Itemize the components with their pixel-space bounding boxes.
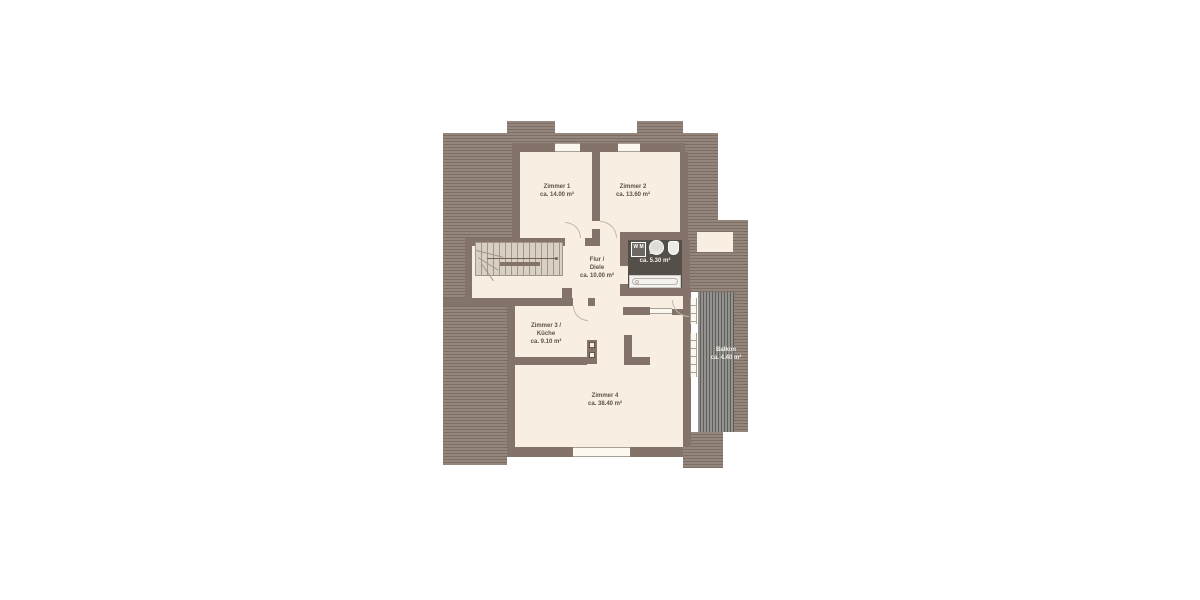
room-area: ca. 10.00 m² bbox=[557, 272, 637, 280]
floor-plan: W M Zimmer 1 ca. 14.00 m² Zimmer 2 ca. 1… bbox=[443, 120, 753, 482]
wall-bottom bbox=[630, 447, 683, 457]
room-name: Diele bbox=[557, 264, 637, 272]
room-label-zimmer-3-kueche: Zimmer 3 / Küche ca. 9.10 m² bbox=[506, 322, 586, 346]
roof-hatch-right-upper bbox=[685, 133, 718, 220]
room-area: ca. 4.40 m² bbox=[691, 354, 761, 362]
window bbox=[650, 308, 672, 314]
room-name: Zimmer 4 bbox=[565, 392, 645, 400]
roof-niche bbox=[697, 232, 733, 252]
room-area: ca. 38.40 m² bbox=[565, 400, 645, 408]
room-area: ca. 5.30 m² bbox=[625, 257, 685, 265]
wall bbox=[512, 143, 555, 152]
floor-rooms-bottom bbox=[507, 298, 691, 448]
door-post-square bbox=[589, 342, 595, 348]
window bbox=[618, 143, 640, 152]
wall bbox=[588, 298, 595, 306]
balcony-deck bbox=[698, 292, 734, 432]
room-name: Küche bbox=[506, 330, 586, 338]
wall-bath-bottom bbox=[620, 288, 690, 296]
window bbox=[555, 143, 580, 152]
wall-stub bbox=[562, 288, 572, 306]
room-label-balkon: Balkon ca. 4.40 m² bbox=[691, 346, 761, 362]
room-name: Bad bbox=[625, 249, 685, 257]
room-label-zimmer-2: Zimmer 2 ca. 13.60 m² bbox=[593, 183, 673, 199]
room-area: ca. 13.60 m² bbox=[593, 191, 673, 199]
roof-hatch-right-of-balcony bbox=[734, 292, 748, 432]
room-name: Balkon bbox=[691, 346, 761, 354]
door-post-square bbox=[589, 352, 595, 358]
wall-bottom bbox=[507, 447, 573, 457]
room-name: Zimmer 1 bbox=[517, 183, 597, 191]
room-label-zimmer-1: Zimmer 1 ca. 14.00 m² bbox=[517, 183, 597, 199]
wall bbox=[623, 307, 650, 315]
room-name: Zimmer 3 / bbox=[506, 322, 586, 330]
wall-hall-bottom bbox=[443, 298, 573, 306]
room-label-zimmer-4: Zimmer 4 ca. 38.40 m² bbox=[565, 392, 645, 408]
wall bbox=[580, 143, 618, 152]
roof-hatch-left-lower bbox=[443, 298, 507, 465]
roof-hatch-left-upper bbox=[443, 145, 516, 238]
page: { "plan": { "type": "floor-plan", "rooms… bbox=[0, 0, 1200, 600]
roof-hatch-bump-left bbox=[507, 121, 555, 133]
roof-hatch-left-stair bbox=[443, 238, 465, 298]
wall-stair-left bbox=[465, 246, 472, 298]
roof-hatch-bump-right bbox=[637, 121, 683, 133]
staircase bbox=[475, 242, 563, 276]
room-area: ca. 14.00 m² bbox=[517, 191, 597, 199]
wall-bath-top bbox=[620, 232, 688, 240]
room-name: Zimmer 2 bbox=[593, 183, 673, 191]
stair-handrail bbox=[487, 258, 557, 259]
wall bbox=[640, 143, 685, 152]
wall bbox=[585, 238, 600, 246]
bathtub-drain bbox=[635, 280, 639, 284]
room-label-bad: Bad ca. 5.30 m² bbox=[625, 249, 685, 265]
wall-l-horizontal bbox=[624, 357, 650, 365]
wall-zimmer1-left bbox=[512, 152, 520, 246]
balcony-door bbox=[690, 298, 697, 324]
roof-hatch-right-middle bbox=[682, 220, 748, 292]
window-bottom bbox=[573, 447, 630, 457]
room-area: ca. 9.10 m² bbox=[506, 338, 586, 346]
wall-kitchen-bottom bbox=[507, 357, 587, 365]
stair-center-rail bbox=[500, 262, 540, 266]
